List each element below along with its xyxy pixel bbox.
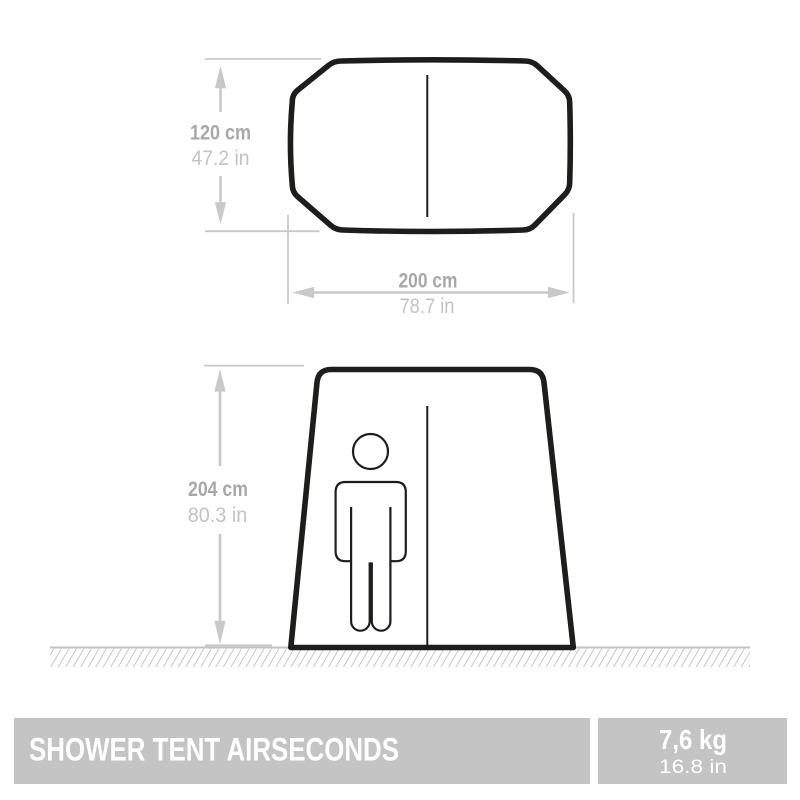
svg-text:120 cm: 120 cm xyxy=(190,122,251,145)
svg-text:200 cm: 200 cm xyxy=(399,269,458,292)
svg-text:7,6 kg: 7,6 kg xyxy=(659,724,727,755)
svg-text:16.8 in: 16.8 in xyxy=(659,756,727,778)
svg-text:SHOWER TENT AIRSECONDS: SHOWER TENT AIRSECONDS xyxy=(29,732,399,768)
svg-text:78.7 in: 78.7 in xyxy=(400,295,455,318)
svg-text:47.2 in: 47.2 in xyxy=(192,147,250,170)
svg-text:80.3 in: 80.3 in xyxy=(188,504,248,527)
svg-text:204 cm: 204 cm xyxy=(188,478,248,501)
